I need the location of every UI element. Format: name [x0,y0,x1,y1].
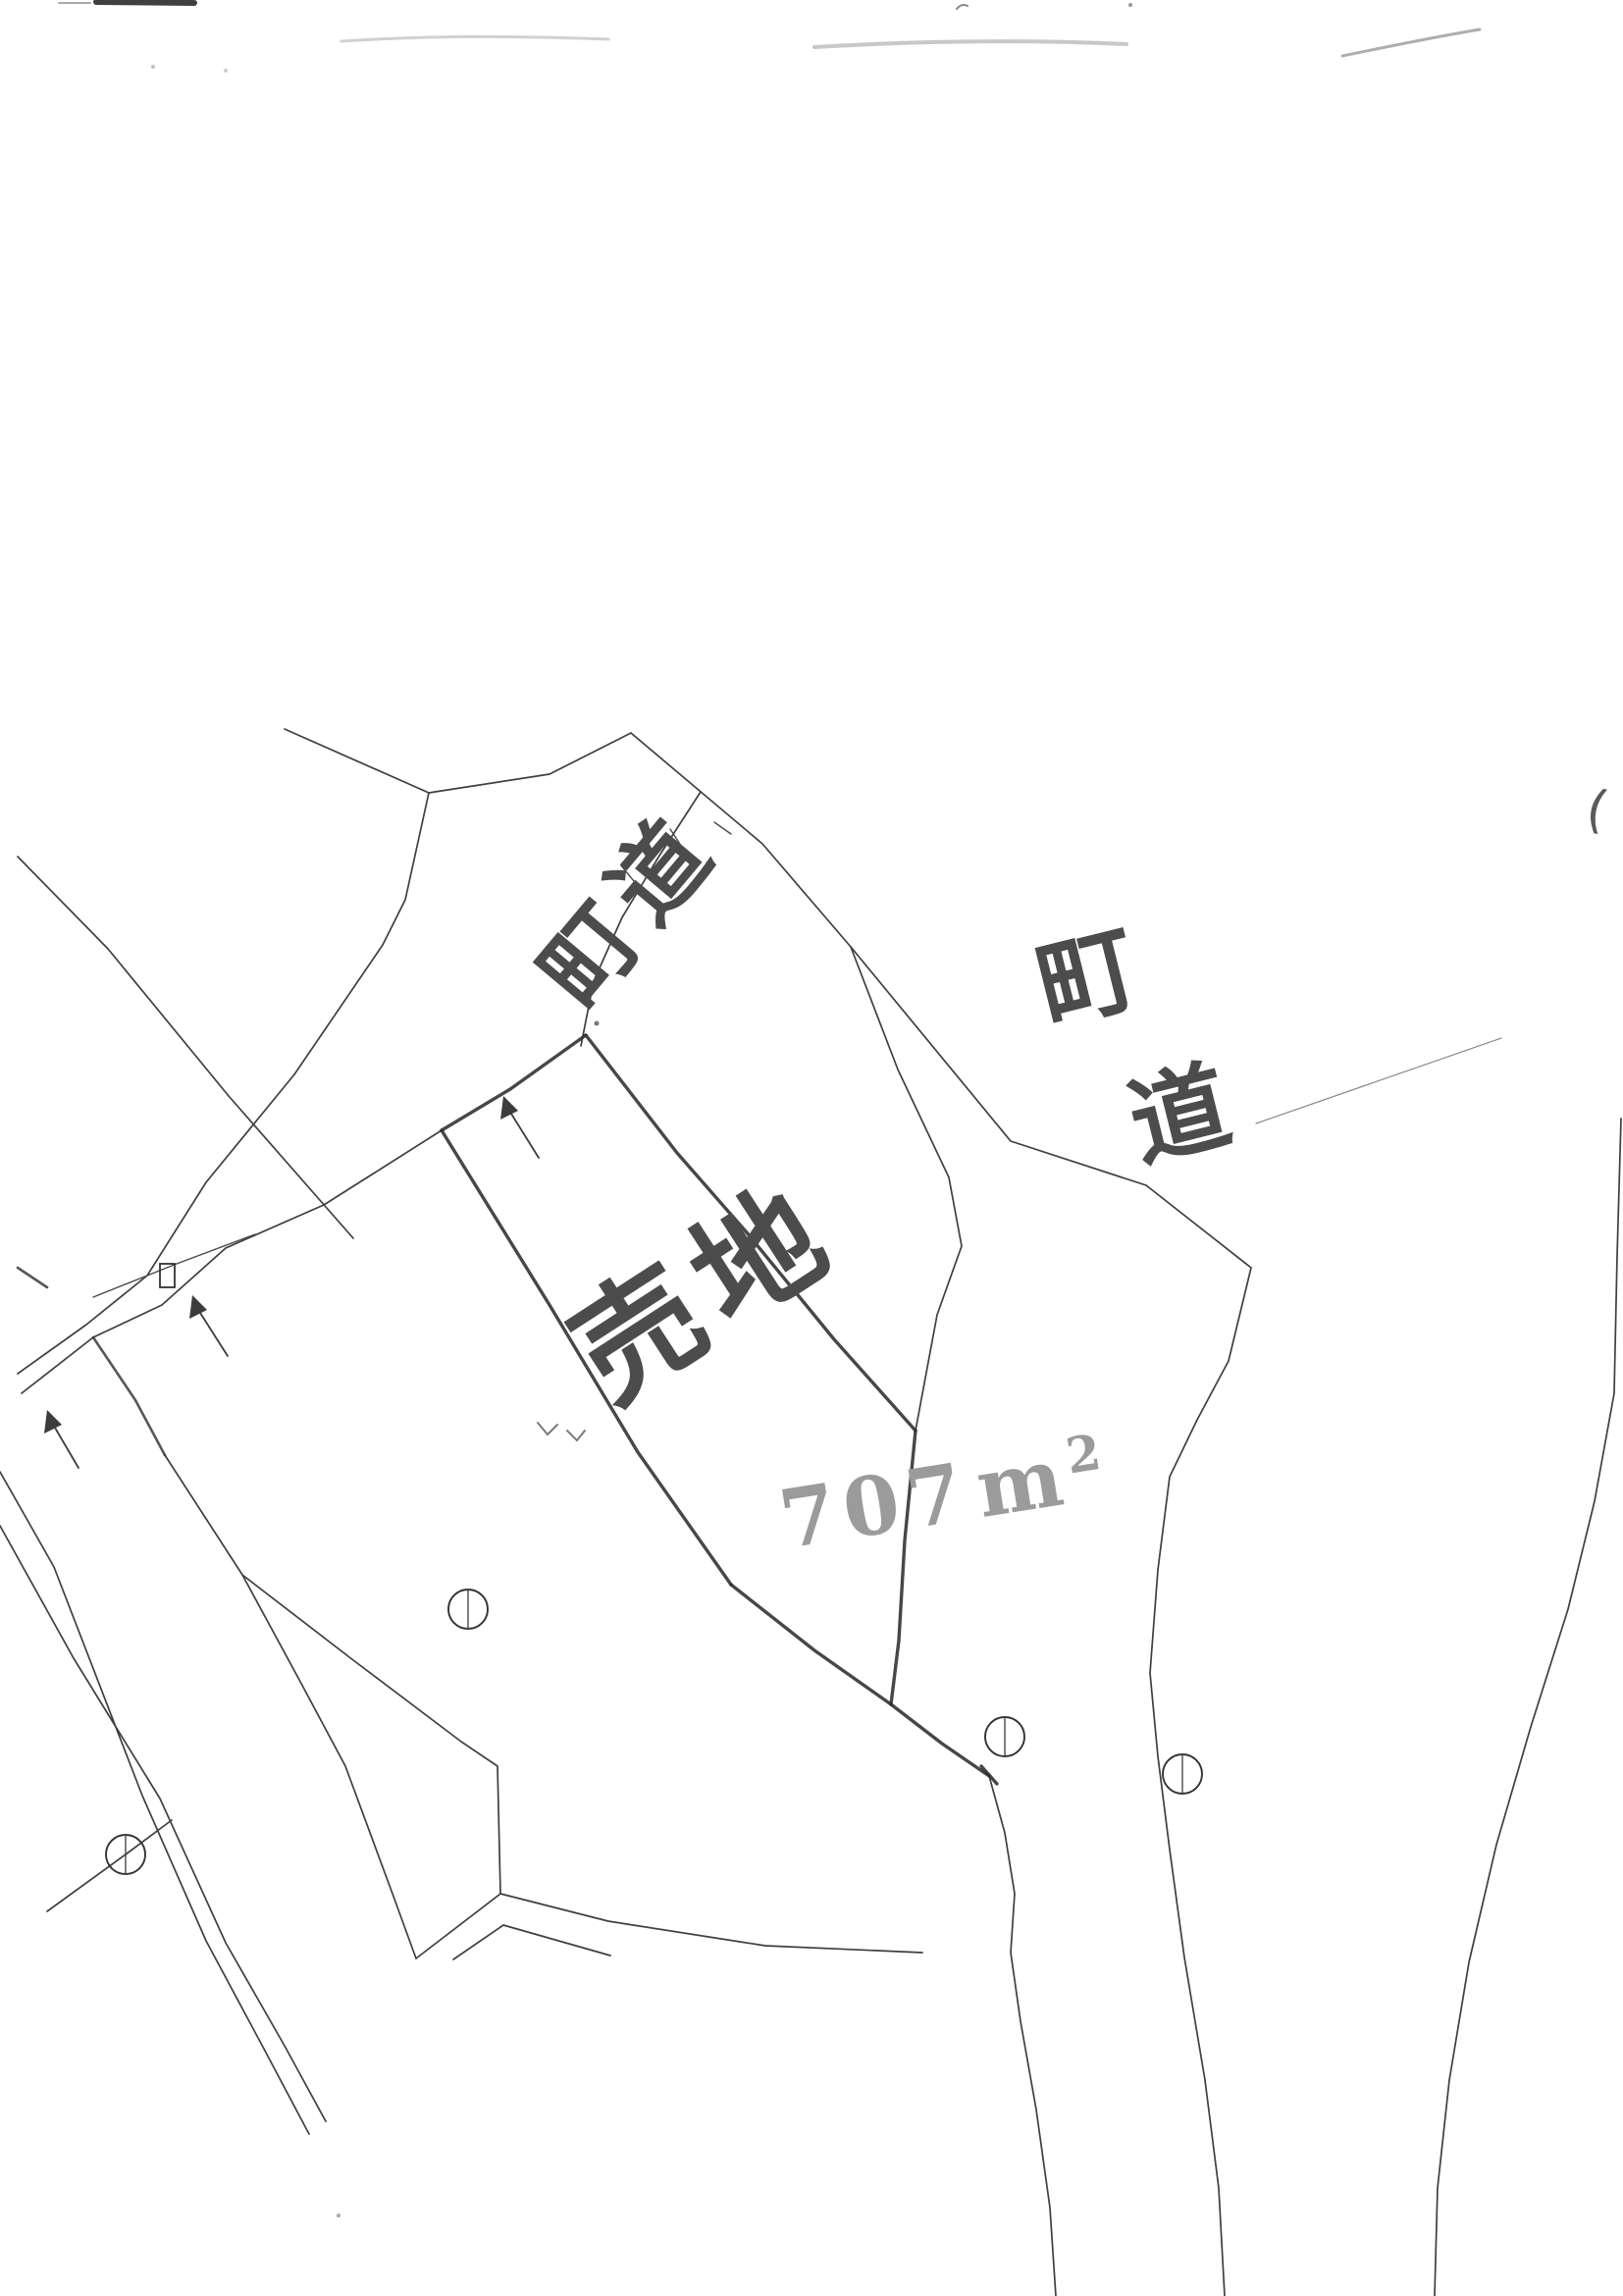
arrow-icon [44,1410,79,1468]
scanned-parcel-map: ( [0,0,1623,2296]
survey-marker-icons [106,1590,1202,1874]
road-label-right-char2: 道 [1118,1047,1241,1183]
scan-artifacts [59,2,1480,2218]
boundary-arrow-icons [44,1096,539,1468]
arrow-icon [500,1096,539,1158]
arrow-icon [189,1295,228,1356]
survey-marker-icon [106,1835,145,1874]
road-label-top: 町道 [517,791,741,1027]
parcel-label: 売地 [547,1153,864,1431]
paren-mark: ( [1581,779,1612,841]
survey-marker-icon [448,1590,488,1629]
parcel-outline-traced [18,1035,997,1784]
road-label-right-char1: 町 [1025,910,1149,1046]
survey-marker-icon [985,1717,1024,1756]
pencil-check-marks [538,1423,585,1440]
parcel-map-drawing: ( [0,0,1623,2296]
survey-marker-icon [1163,1754,1202,1794]
area-label: 707m2 [773,1422,1119,1568]
